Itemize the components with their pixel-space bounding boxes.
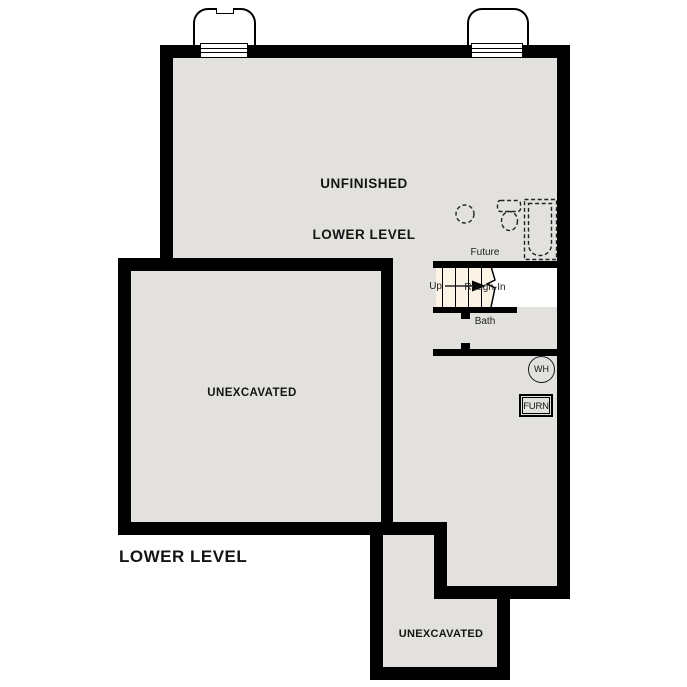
water-heater-label: WH (534, 364, 549, 374)
plan-title: LOWER LEVEL (119, 547, 247, 567)
furnace-box: FURN (519, 394, 553, 417)
bath-label-line1: Future (445, 247, 525, 259)
room-label-unexcavated-lower: UNEXCAVATED (341, 628, 541, 640)
room-label-unfinished-lower-level: UNFINISHED LOWER LEVEL (264, 141, 464, 277)
tub-rough-in-inner-icon (529, 204, 552, 256)
bath-label-line3: Bath (445, 316, 525, 328)
floor-plan: WH FURN UNFINISHED LOWER LEVEL UNEXCAVAT… (0, 0, 687, 687)
unfinished-label-line2: LOWER LEVEL (264, 226, 464, 243)
future-rough-in-bath-label: Future Rough-In Bath (445, 224, 525, 351)
furnace-label: FURN (522, 397, 550, 414)
unfinished-label-line1: UNFINISHED (264, 175, 464, 192)
room-label-unexcavated-main: UNEXCAVATED (152, 387, 352, 399)
water-heater-badge: WH (528, 356, 555, 383)
bath-label-line2: Rough-In (445, 282, 525, 294)
toilet-tank-rough-in-icon (498, 201, 521, 212)
stairs-up-label: Up (416, 281, 442, 292)
fixtures-overlay (0, 0, 687, 687)
